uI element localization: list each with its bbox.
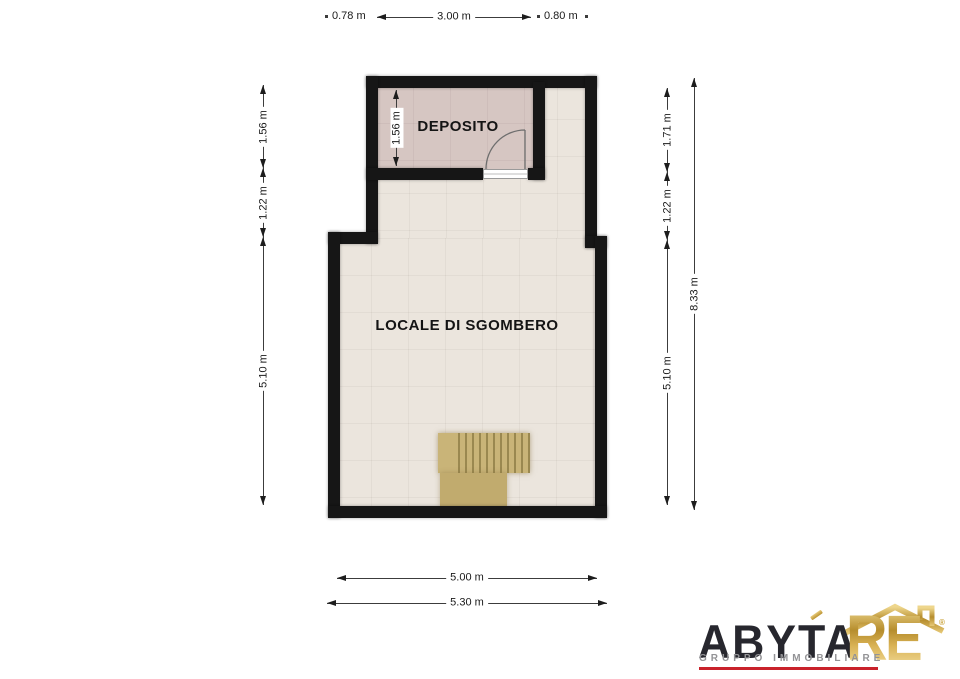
wall-bottom [328, 506, 607, 518]
staircase-landing [440, 473, 507, 507]
logo-red-bar [699, 667, 878, 670]
arrow-down-icon [393, 157, 399, 166]
staircase-treads [458, 433, 530, 473]
dim-right-3: 5.10 m [667, 240, 668, 505]
dim-tick [325, 15, 328, 18]
dim-top-width: 3.00 m [377, 17, 531, 18]
arrow-up-icon [393, 90, 399, 99]
dim-right-total: 8.33 m [694, 78, 695, 510]
arrow-down-icon [260, 228, 266, 237]
logo-tagline: GRUPPO IMMOBILIARE [699, 653, 884, 664]
dim-label: 1.22 m [661, 186, 674, 226]
wall-left [328, 232, 340, 518]
arrow-up-icon [664, 172, 670, 181]
arrow-down-icon [260, 496, 266, 505]
wall-upper-left [366, 76, 378, 244]
floorplan-canvas: 0.78 m 3.00 m 0.80 m 1.56 m 1.22 m 5.10 … [0, 0, 960, 679]
wall-deposito-bottom [366, 168, 483, 180]
dim-tick [537, 15, 540, 18]
arrow-right-icon [588, 575, 597, 581]
dim-left-3: 5.10 m [263, 237, 264, 505]
arrow-right-icon [598, 600, 607, 606]
arrow-right-icon [522, 14, 531, 20]
arrow-left-icon [327, 600, 336, 606]
wall-deposito-right [533, 82, 545, 180]
registered-mark: ® [939, 618, 945, 627]
agency-logo: ABYTA RE ® GRUPPO IMMOBILIARE [690, 598, 958, 676]
arrow-down-icon [664, 163, 670, 172]
arrow-up-icon [260, 168, 266, 177]
wall-door-jamb [528, 168, 545, 180]
dim-label: 5.30 m [446, 597, 488, 610]
arrow-left-icon [337, 575, 346, 581]
dim-label: 5.10 m [257, 351, 270, 391]
dim-right-2: 1.22 m [667, 172, 668, 240]
arrow-up-icon [664, 88, 670, 97]
dim-top-left-offset: 0.78 m [332, 10, 366, 23]
dim-tick [585, 15, 588, 18]
wall-top [366, 76, 597, 88]
wall-right [595, 236, 607, 518]
dim-label: 5.00 m [446, 572, 488, 585]
dim-label: 1.71 m [661, 110, 674, 150]
arrow-down-icon [664, 496, 670, 505]
arrow-up-icon [260, 237, 266, 246]
arrow-down-icon [691, 501, 697, 510]
arrow-down-icon [664, 231, 670, 240]
dim-left-1: 1.56 m [263, 85, 264, 168]
dim-label: 5.10 m [661, 353, 674, 393]
arrow-up-icon [664, 240, 670, 249]
dim-right-1: 1.71 m [667, 88, 668, 172]
dim-label: 1.22 m [257, 183, 270, 223]
dim-deposito-height: 1.56 m [396, 90, 397, 166]
room-label-locale: LOCALE DI SGOMBERO [347, 317, 587, 334]
dim-bottom-inner: 5.00 m [337, 578, 597, 579]
dim-label: 8.33 m [688, 274, 701, 314]
room-label-deposito: DEPOSITO [398, 118, 518, 135]
dim-bottom-total: 5.30 m [327, 603, 607, 604]
arrow-up-icon [260, 85, 266, 94]
arrow-left-icon [377, 14, 386, 20]
dim-label: 1.56 m [257, 107, 270, 147]
door-threshold [483, 169, 528, 179]
arrow-down-icon [260, 159, 266, 168]
wall-upper-right [585, 76, 597, 248]
dim-top-right-offset: 0.80 m [544, 10, 578, 23]
arrow-up-icon [691, 78, 697, 87]
dim-label: 3.00 m [433, 11, 475, 24]
dim-left-2: 1.22 m [263, 168, 264, 237]
